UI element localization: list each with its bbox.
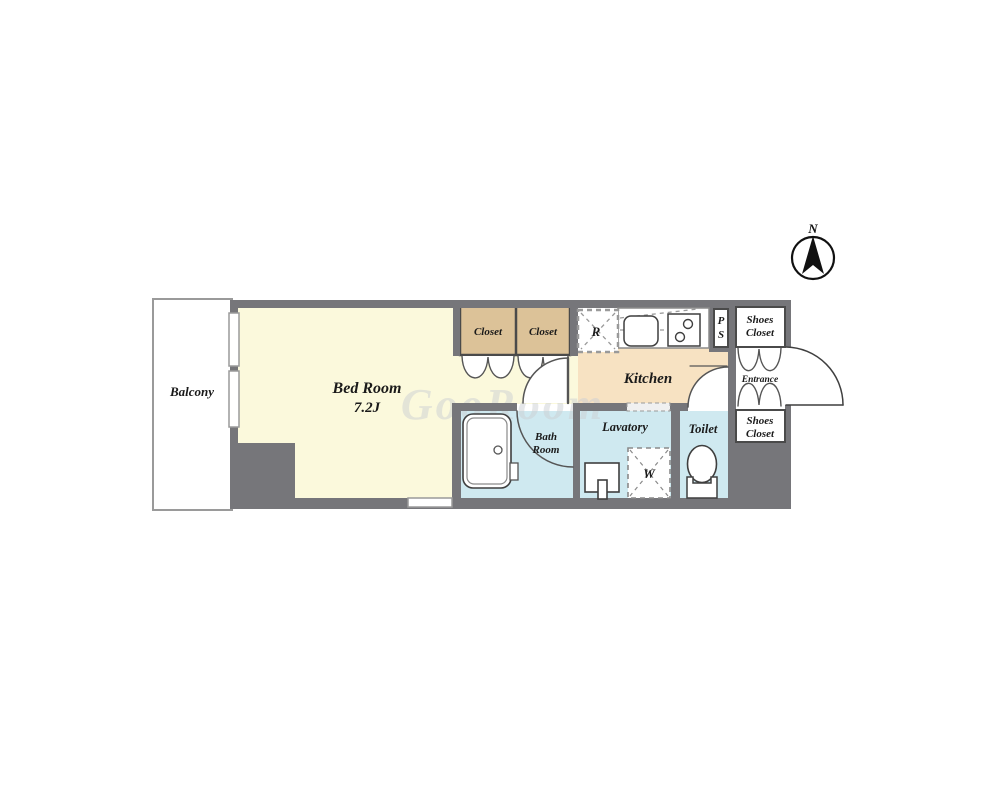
entrance-door-arc: [786, 347, 843, 405]
wall-toilet-right: [728, 403, 736, 498]
floorplan-drawing: GooRoom: [0, 0, 999, 801]
wall-ps-right: [728, 308, 736, 347]
wall-bath-top: [452, 403, 517, 411]
closet-right-label: Closet: [529, 326, 558, 338]
closet-left-label: Closet: [474, 326, 503, 338]
pipe-shaft-label: P: [718, 315, 725, 327]
bath-label: Room: [532, 444, 560, 456]
bedroom-label: Bed Room: [332, 380, 402, 397]
bedroom-window-upper: [229, 313, 239, 366]
entrance-label: Entrance: [741, 375, 779, 385]
wall-top: [230, 300, 791, 308]
toilet-label: Toilet: [689, 422, 718, 436]
compass: N: [792, 221, 834, 279]
lavatory-label: Lavatory: [601, 420, 648, 434]
wall-bath-right: [573, 403, 580, 498]
bath-door-handle: [510, 463, 518, 480]
lavatory-sliding-door: [627, 403, 670, 411]
shoes-closet-bottom-label: Shoes: [747, 415, 774, 427]
shoes-closet-top-label: Shoes: [747, 314, 774, 326]
wall-bath-left: [452, 403, 461, 498]
kitchen-label: Kitchen: [623, 371, 672, 387]
wall-bottom: [230, 498, 791, 509]
bedroom-window-bottom: [408, 498, 452, 507]
bedroom-size-label: 7.2J: [354, 400, 381, 416]
balcony-label: Balcony: [169, 384, 214, 399]
wall-below-shoes: [736, 442, 785, 498]
shoes-closet-bottom-label: Closet: [746, 428, 775, 440]
bedroom-window-lower: [229, 371, 239, 427]
wall-entrance-left: [728, 347, 736, 407]
shoes-closet-top-label: Closet: [746, 327, 775, 339]
refrigerator-label: R: [591, 324, 601, 339]
wall-notch: [238, 443, 295, 498]
stove-icon: [668, 314, 700, 346]
wall-closet-left: [453, 300, 460, 356]
entrance-scallops-bottom: [738, 383, 781, 406]
entrance-scallops-top: [738, 348, 781, 371]
bath-label: Bath: [534, 431, 557, 443]
balcony-floor: [153, 299, 232, 510]
wall-lav-toilet: [671, 411, 680, 498]
floorplan-page: GooRoom: [0, 0, 999, 801]
kitchen-sink-icon: [624, 316, 658, 346]
compass-n-label: N: [807, 221, 818, 236]
pipe-shaft-label: S: [718, 329, 724, 341]
bathtub-drain-icon: [494, 446, 502, 454]
washer-label: W: [643, 466, 656, 481]
